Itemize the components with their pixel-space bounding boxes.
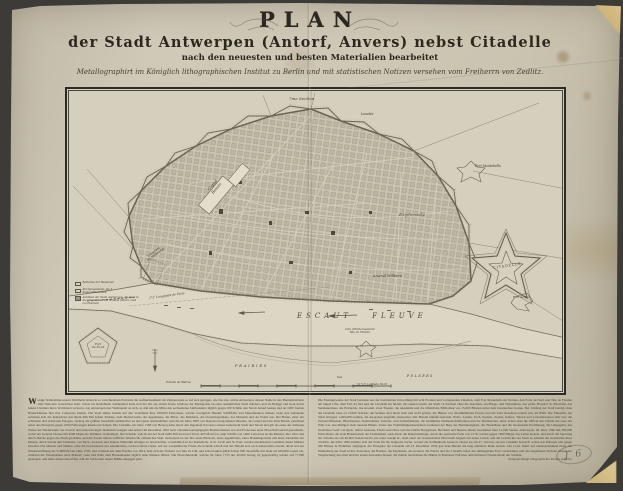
flourish-right-icon (348, 14, 400, 36)
label-polders: POLDERS (407, 375, 434, 379)
notes-left-text: enige Städteplätze unsers Welttheils hab… (28, 398, 304, 461)
legend-item-label: Kirchengebäude, die 3 Kommunikationen (83, 288, 138, 294)
notes-right-column: Die Festungswerke der Stadt bestehen aus… (318, 398, 572, 478)
vertical-fold-crease (307, 4, 311, 484)
flourish-left-icon (228, 14, 280, 36)
bottom-edge-fold (179, 477, 481, 485)
legend-item-label: Anhöhen der Stadt Antwerpen, die über di… (83, 296, 138, 305)
map-frame: 7me Section Lunette Fort Montebello Gran… (65, 87, 566, 395)
label-scale: Échelle de Mètres (166, 381, 191, 384)
printer-imprint: Verlag des Königl. lithographischen Inst… (318, 458, 572, 462)
label-lunette: Lunette (361, 113, 374, 117)
legend-symbol-icon (75, 282, 81, 287)
map-legend: Batterien der Bastionen Kirchengebäude, … (75, 281, 137, 306)
scanned-map-page: PLAN der Stadt Antwerpen (Antorf, Anvers… (0, 0, 623, 491)
label-esplanade: Esplanade (399, 213, 426, 218)
legend-item: Kirchengebäude, die 3 Kommunikationen (75, 288, 137, 294)
label-fort-du-sud: Fort du Sud (513, 296, 530, 299)
map-canvas: 7me Section Lunette Fort Montebello Gran… (68, 90, 563, 392)
legend-symbol-icon (75, 296, 81, 301)
map-drawing (69, 91, 563, 392)
label-arsenal: Arsenal Militaire (373, 275, 402, 279)
legend-symbol-icon (75, 289, 81, 294)
pencil-mark-text: J 6 (564, 448, 584, 462)
label-fort-du-nord: Fort du Nord (90, 343, 106, 350)
notes-left-column: Wenige Städteplätze unsers Welttheils ha… (28, 398, 304, 478)
label-tete-de-flandre: Côte d'Embarquement Tête de Flandre (345, 329, 375, 335)
label-iles: Iles (337, 376, 342, 379)
label-latitude: 51°13′ Latitude Nord (357, 383, 387, 386)
label-fort-montebello: Fort Montebello (475, 165, 501, 169)
notes-right-text: Die Festungswerke der Stadt bestehen aus… (318, 398, 572, 457)
legend-item: Batterien der Bastionen (75, 281, 137, 286)
label-escaut-fleuve: ESCAUT FLEUVE (297, 312, 427, 320)
label-prairies: PRAIRIES (235, 365, 268, 369)
legend-item: Anhöhen der Stadt Antwerpen, die über di… (75, 296, 137, 305)
legend-item-label: Batterien der Bastionen (83, 281, 115, 284)
drop-cap: W (28, 398, 37, 405)
